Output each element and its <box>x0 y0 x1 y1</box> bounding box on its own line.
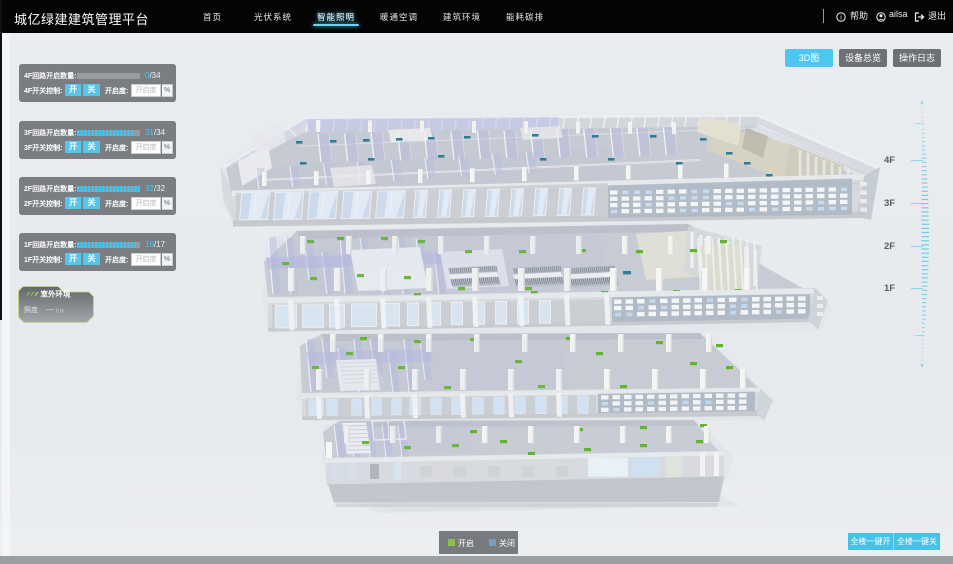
svg-text:照度: 照度 <box>24 305 38 314</box>
svg-text:—: — <box>46 305 54 314</box>
svg-text:室外环境: 室外环境 <box>41 289 71 299</box>
svg-text:lux: lux <box>56 308 65 315</box>
svg-text:i: i <box>840 15 842 22</box>
